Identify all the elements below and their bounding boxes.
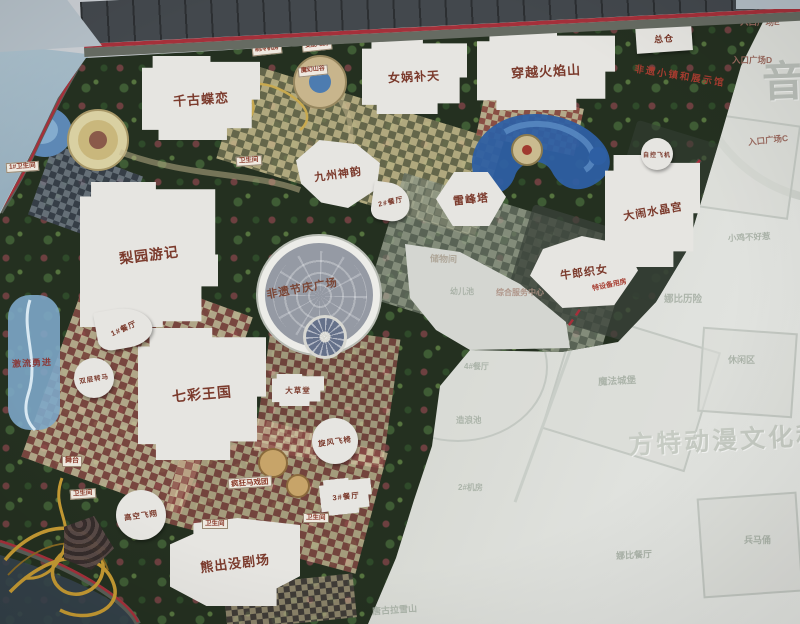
faded-label-chicken-ride: 小鸡不好惹 (728, 230, 771, 244)
attraction-label: 大闹水晶宫 (622, 198, 684, 224)
restroom-chip: 卫生间 (202, 519, 228, 529)
faded-block (697, 327, 798, 418)
faded-label-machine-room: 2#机房 (458, 482, 483, 493)
attraction-label: 牛郎织女 (559, 261, 609, 284)
attraction-label: 穿越火焰山 (511, 59, 582, 82)
ride-shuangcengzhuanma: 双层转马 (74, 358, 114, 398)
faded-label-nabi-adventure: 娜比历险 (664, 291, 702, 305)
faded-label-terracotta: 兵马俑 (744, 533, 771, 546)
ride-label: 自控飞机 (643, 150, 671, 159)
faded-label-restaurant-4: 4#餐厅 (464, 361, 489, 372)
faded-label-service-center: 综合服务中心 (496, 287, 544, 298)
ride-label: 旋风飞椅 (317, 433, 352, 449)
faded-label-storage: 储物间 (430, 252, 457, 266)
attraction-liyuanyouji: 梨园游记 (80, 182, 218, 327)
stage-chip: 舞台 (62, 456, 82, 467)
attraction-qiangudielian: 千古蝶恋 (142, 56, 260, 140)
gate-plaza-d: 入口广场D (732, 54, 772, 66)
attraction-label: 女娲补天 (388, 66, 441, 86)
faded-label-magic-castle: 魔法城堡 (598, 372, 637, 388)
ride-zikongfeiji: 自控飞机 (641, 138, 673, 170)
attraction-chuanyuehuoyanshan: 穿越火焰山 (477, 30, 615, 110)
attraction-label: 九州神韵 (313, 163, 363, 186)
attraction-label: 雷峰塔 (452, 189, 489, 209)
ride-label: 高空飞翔 (123, 507, 158, 523)
restroom-chip: 卫生间 (70, 488, 96, 500)
attraction-label: 七彩王国 (171, 381, 233, 406)
attraction-label: 熊出没剧场 (199, 548, 271, 575)
restaurant-label: 2#餐厅 (377, 194, 404, 209)
ride-label: 双层转马 (78, 370, 109, 385)
attraction-label: 千古蝶恋 (172, 87, 229, 110)
attraction-label: 梨园游记 (118, 241, 180, 268)
attraction-qicaiwangguo: 七彩王国 (138, 328, 266, 460)
ride-xuanfengfeiyi: 旋风飞椅 (312, 418, 358, 464)
faded-label-kids-pool: 幼儿池 (450, 286, 474, 297)
restroom-chip: 卫生间 (236, 155, 262, 167)
faded-label-wave-pool: 造浪池 (456, 414, 482, 426)
circus-pavilion (286, 474, 310, 498)
restaurant-label: 3#餐厅 (332, 489, 360, 503)
faded-label-leisure-area: 休闲区 (728, 353, 755, 366)
ride-gaokongfeixiang: 高空飞翔 (116, 490, 166, 540)
hall-dacaotang: 大草堂 (272, 374, 324, 406)
restroom-chip: 卫生间 (303, 513, 329, 523)
circus-pavilion (258, 448, 288, 478)
faded-label-nabi-restaurant: 娜比餐厅 (616, 547, 653, 562)
sky-corner-right (736, 0, 800, 9)
warehouse-label: 总仓 (654, 31, 675, 45)
restaurant-label: 1#餐厅 (109, 317, 138, 338)
log-flume-label: 激流勇进 (12, 355, 53, 370)
attraction-nvwabutian: 女娲补天 (362, 38, 467, 114)
hall-label: 大草堂 (285, 385, 311, 396)
park-map-photo: 千古蝶恋 女娲补天 穿越火焰山 总仓 九州神韵 雷峰塔 大闹水晶宫 牛郎织女 梨… (0, 0, 800, 624)
